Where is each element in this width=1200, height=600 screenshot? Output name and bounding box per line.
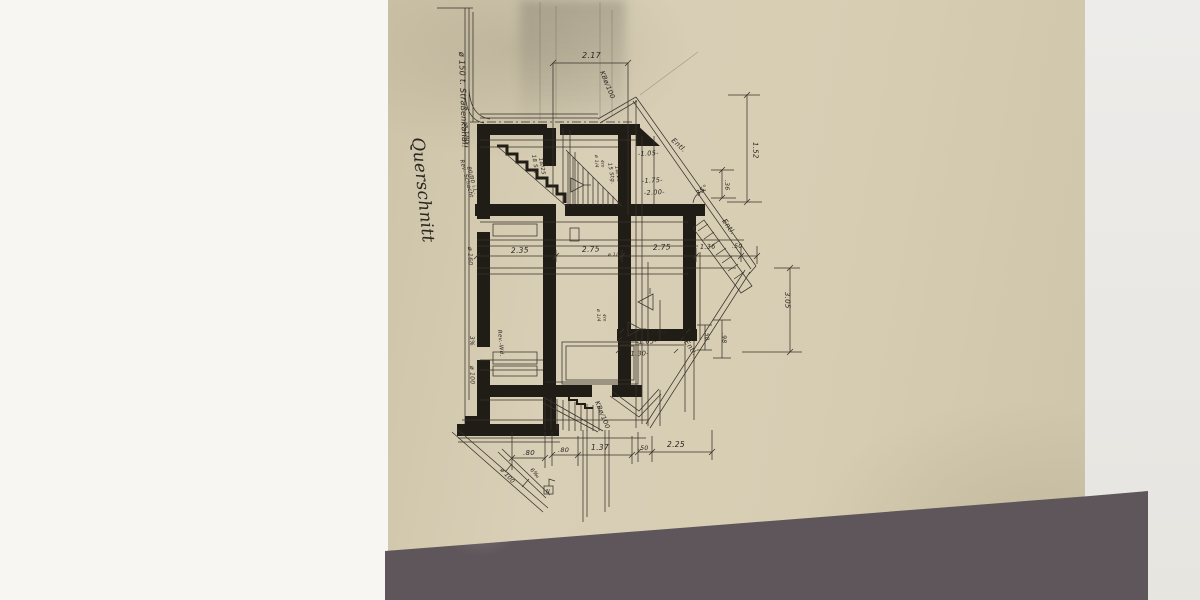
annotation-42: .80 xyxy=(558,446,569,454)
annotation-47: 6‰ xyxy=(529,467,541,480)
annotation-37: 3% xyxy=(468,336,475,346)
annotation-20: Entl. xyxy=(720,218,736,237)
annotation-45: 2.25 xyxy=(667,440,685,449)
annotation-35: 4m xyxy=(601,314,607,322)
annotation-16: 4m xyxy=(599,160,605,168)
photo-of-drawing: ø 150 t. Straßenkanal!ø 180Rev.-Schacht8… xyxy=(0,0,1200,600)
annotation-33: .98 xyxy=(720,333,727,344)
drawing-title: Querschnitt xyxy=(407,136,438,243)
annotation-40: KBø/100 xyxy=(593,400,611,430)
walls-and-slabs xyxy=(457,124,705,436)
annotation-48: N xyxy=(546,489,550,495)
annotation-46: ø 100 xyxy=(498,466,516,485)
annotation-44: .50 xyxy=(638,445,648,452)
annotation-1: ø 180 xyxy=(462,123,471,144)
sewer-pipes xyxy=(452,429,609,522)
annotation-27: 3.05 xyxy=(783,292,792,309)
annotation-28: -2.00- xyxy=(648,328,670,337)
dimension-lines xyxy=(474,60,802,470)
annotation-30: -1.30- xyxy=(628,349,650,358)
annotation-6: KBø/100 xyxy=(598,70,616,100)
annotation-7: Entl. xyxy=(670,137,688,155)
annotation-19: 35° xyxy=(694,183,709,198)
annotation-24: 2.75 xyxy=(653,242,671,252)
upper-staircase xyxy=(497,146,622,206)
annotation-36: ø 160 xyxy=(466,246,474,266)
annotation-43: 1.37 xyxy=(591,443,609,452)
annotation-41: .80 xyxy=(523,449,535,457)
annotation-5: 2.17 xyxy=(582,51,602,60)
annotation-29: -1.65- xyxy=(636,337,658,346)
annotation-25: 1.36 xyxy=(700,242,716,251)
annotation-39: Rev.-Wd. xyxy=(496,330,504,357)
annotation-9: -1.75- xyxy=(642,176,664,185)
annotation-17: 1.52 xyxy=(751,142,760,159)
annotation-21: 2.35 xyxy=(511,245,529,255)
annotation-38: ø 100 xyxy=(468,365,476,385)
annotation-26: .50 xyxy=(732,243,742,250)
annotation-18: .36 xyxy=(723,180,730,191)
annotation-22: 2.75 xyxy=(582,244,600,254)
annotation-8: -1.05- xyxy=(638,149,660,158)
annotation-32: .50 xyxy=(703,331,709,341)
annotation-23: ø 1/2 xyxy=(607,252,621,258)
annotation-10: -2.00- xyxy=(644,188,666,197)
annotation-15: ø 1/4 xyxy=(593,154,599,168)
pencil-construction-lines xyxy=(540,2,698,120)
annotation-34: ø 1/4 xyxy=(595,308,601,322)
